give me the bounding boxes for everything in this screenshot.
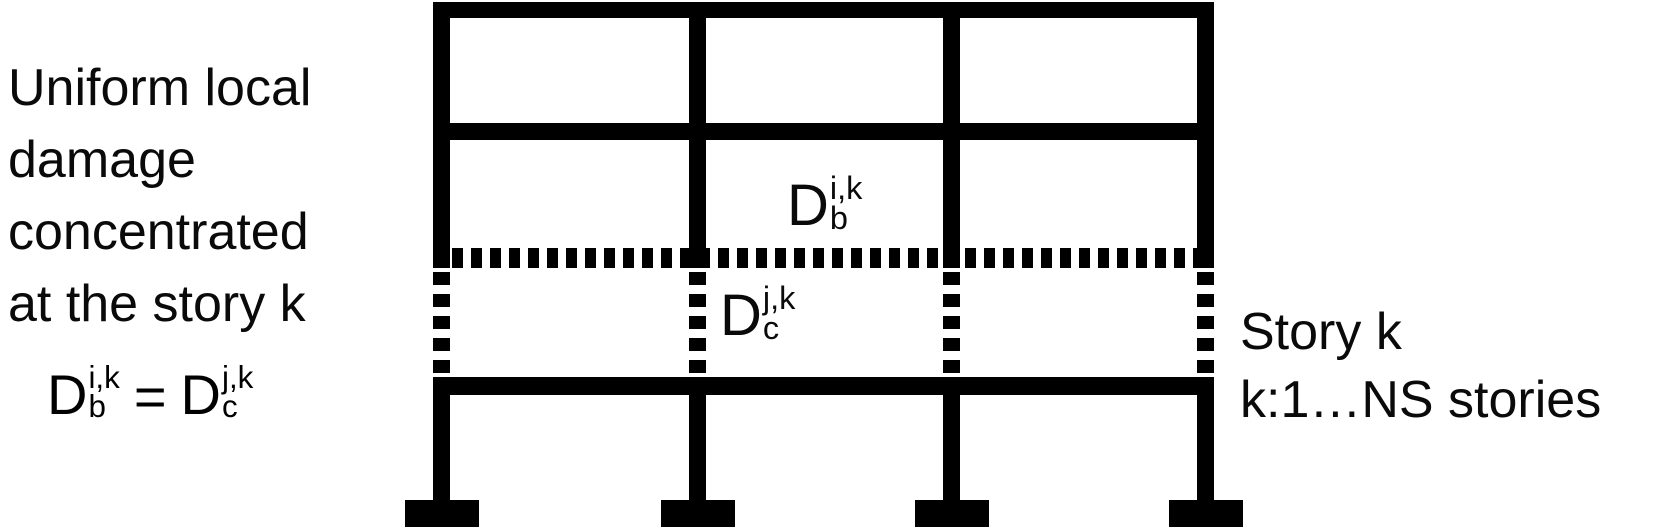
roof-beam bbox=[433, 2, 1214, 18]
story-k-note: Story k k:1…NS stories bbox=[1240, 298, 1601, 434]
column-3-lower-segment bbox=[943, 377, 960, 500]
column-damage-label: D j,k c bbox=[720, 282, 795, 349]
equation-lhs-base: D bbox=[47, 368, 87, 421]
column-4-damaged-segment bbox=[1197, 272, 1214, 373]
beam-damage-subscript: b bbox=[830, 204, 862, 234]
equation-lhs-subscript: b bbox=[88, 393, 119, 422]
story-k-note-line-2: k:1…NS stories bbox=[1240, 366, 1601, 434]
column-4-lower-segment bbox=[1197, 377, 1214, 500]
damage-note: Uniform local damage concentrated at the… bbox=[8, 52, 311, 340]
footing-4 bbox=[1169, 500, 1243, 527]
column-4-upper-segment bbox=[1197, 2, 1214, 268]
story-k-note-line-1: Story k bbox=[1240, 298, 1601, 366]
equation-rhs: D j,k c bbox=[181, 368, 254, 426]
beam-damage-label: D i,k b bbox=[787, 172, 862, 239]
column-1-upper-segment bbox=[433, 2, 450, 268]
equation-rhs-subscript: c bbox=[222, 393, 253, 422]
damage-note-line-1: Uniform local bbox=[8, 52, 311, 124]
damage-equation: D i,k b = D j,k c bbox=[47, 368, 253, 426]
column-3-damaged-segment bbox=[943, 272, 960, 373]
column-2-damaged-segment bbox=[689, 272, 706, 373]
damage-note-line-4: at the story k bbox=[8, 268, 311, 340]
equation-lhs: D i,k b bbox=[47, 368, 120, 426]
equation-rhs-base: D bbox=[181, 368, 221, 421]
column-1-damaged-segment bbox=[433, 272, 450, 373]
column-1-lower-segment bbox=[433, 377, 450, 500]
footing-2 bbox=[661, 500, 735, 527]
column-2-upper-segment bbox=[689, 2, 706, 268]
footing-3 bbox=[915, 500, 989, 527]
figure-canvas: Uniform local damage concentrated at the… bbox=[0, 0, 1654, 528]
column-damage-base: D bbox=[720, 288, 762, 343]
damage-note-line-2: damage bbox=[8, 124, 311, 196]
beam-damage-base: D bbox=[787, 178, 829, 233]
column-2-lower-segment bbox=[689, 377, 706, 500]
column-damage-subscript: c bbox=[763, 314, 795, 344]
footing-1 bbox=[405, 500, 479, 527]
column-3-upper-segment bbox=[943, 2, 960, 268]
floor-beam-upper bbox=[433, 123, 1214, 140]
equals-sign: = bbox=[134, 370, 167, 423]
story-k-floor-beam bbox=[433, 377, 1214, 395]
damage-note-line-3: concentrated bbox=[8, 196, 311, 268]
damaged-beam-dotted-line bbox=[433, 248, 1214, 268]
